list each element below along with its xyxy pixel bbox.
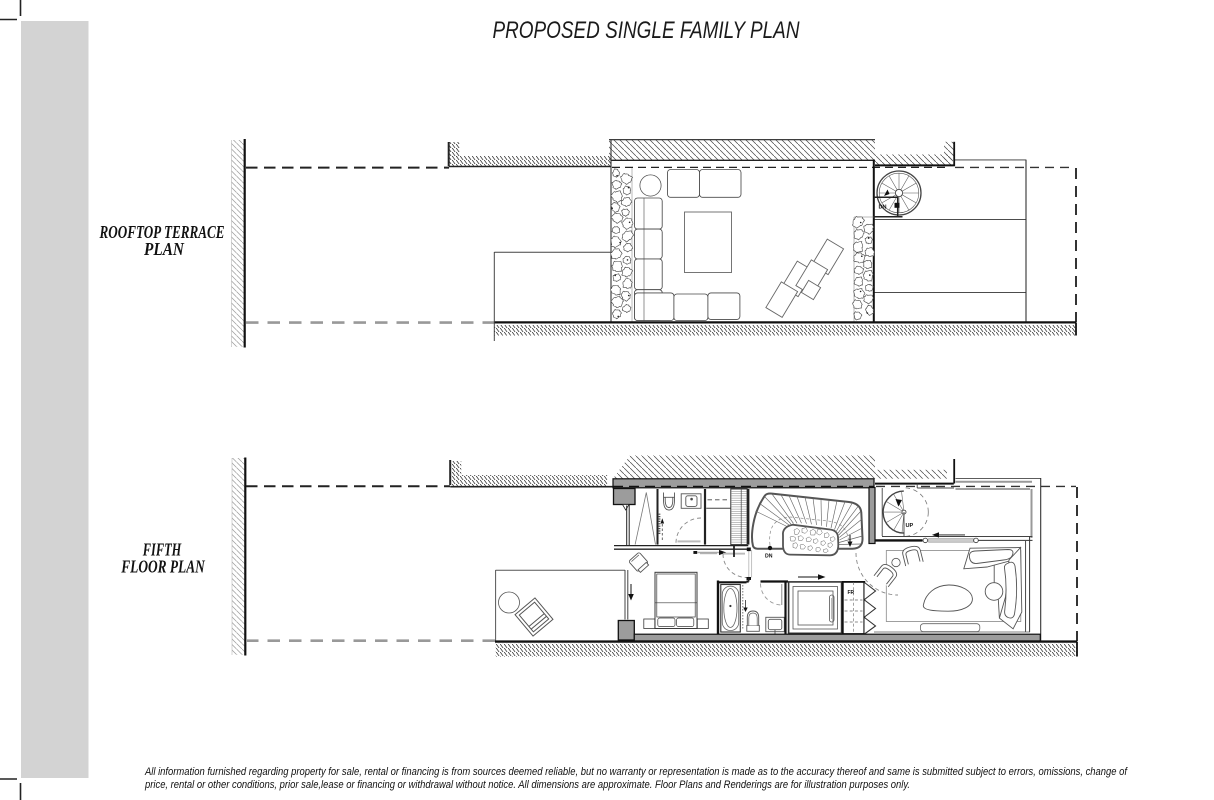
svg-text:PROPOSED SINGLE FAMILY PLAN: PROPOSED SINGLE FAMILY PLAN — [493, 17, 800, 44]
svg-text:UP: UP — [906, 523, 914, 529]
svg-text:PLAN: PLAN — [143, 239, 185, 259]
svg-text:DN: DN — [765, 554, 773, 560]
svg-text:DN: DN — [879, 205, 887, 211]
svg-text:price, rental or other conditi: price, rental or other conditions, prior… — [144, 779, 910, 791]
svg-text:FLOOR PLAN: FLOOR PLAN — [120, 557, 205, 577]
svg-text:All information furnished rega: All information furnished regarding prop… — [144, 766, 1128, 778]
